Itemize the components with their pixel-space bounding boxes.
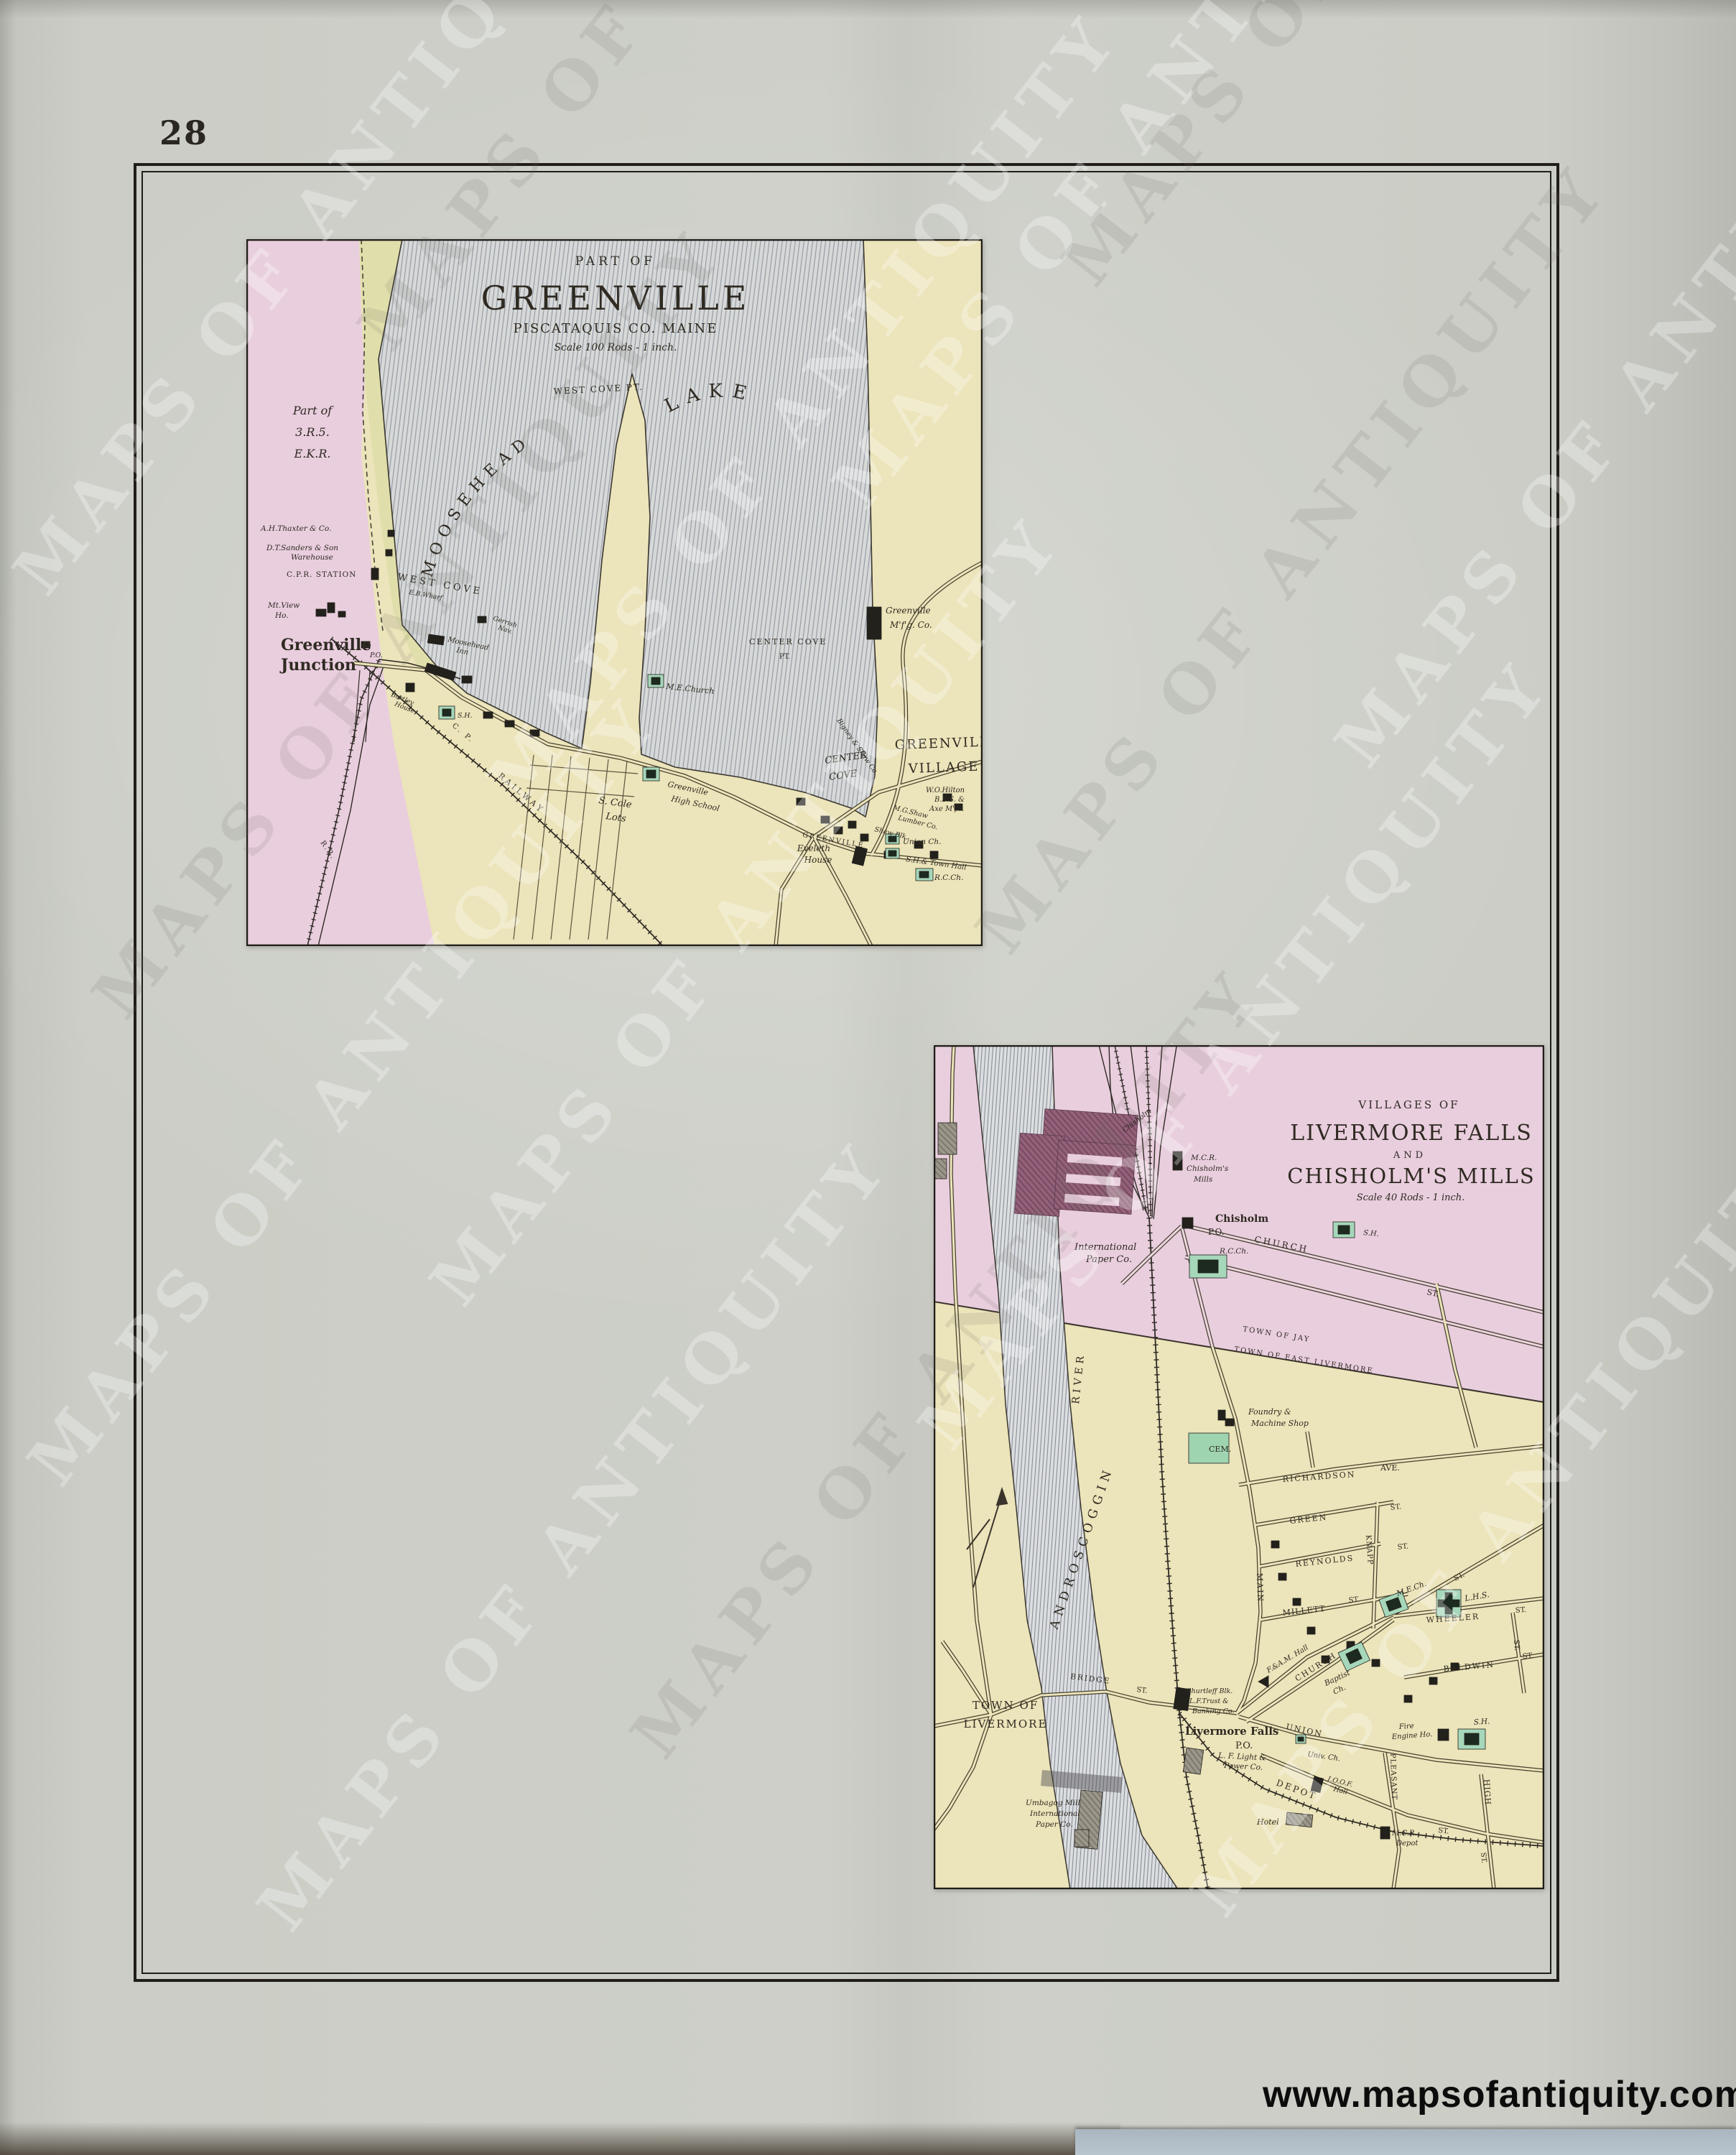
map-label: Warehouse bbox=[291, 553, 333, 562]
page-bottom-shadow bbox=[0, 2122, 1120, 2155]
map-label: ST. bbox=[1348, 1595, 1360, 1605]
map-label: ST. bbox=[1512, 1639, 1521, 1651]
map-label: Banking Co. bbox=[1192, 1707, 1235, 1715]
map-label: PT. bbox=[779, 653, 790, 661]
map-label: ST. bbox=[1479, 1852, 1487, 1863]
map-label: Ho. bbox=[274, 611, 289, 620]
map-label: Umbagog Mill bbox=[1026, 1799, 1080, 1807]
map-label: MAIN bbox=[1255, 1573, 1265, 1603]
map-label: R.C.Ch. bbox=[934, 873, 963, 882]
map-label: ST. bbox=[1515, 1606, 1526, 1615]
map-label: R.C.Ch. bbox=[1219, 1247, 1248, 1256]
photo-top-shadow bbox=[0, 0, 1736, 19]
map-label: ST. bbox=[1136, 1686, 1148, 1695]
map-label: Depot bbox=[1396, 1840, 1419, 1848]
map-label: House bbox=[804, 855, 832, 865]
map-title-and: AND bbox=[1393, 1150, 1426, 1161]
map-title-line1: LIVERMORE FALLS bbox=[1290, 1121, 1533, 1146]
map-label: Shurtleff Blk. bbox=[1187, 1687, 1233, 1695]
map-label: International bbox=[1074, 1242, 1136, 1253]
map-label: Chisholm's bbox=[1187, 1164, 1229, 1173]
map-label: Greenville bbox=[886, 606, 931, 616]
map-label: International bbox=[1029, 1809, 1080, 1818]
map-label: M.C.R. bbox=[1391, 1830, 1417, 1837]
map-label: A.H.Thaxter & Co. bbox=[260, 524, 331, 533]
map-label: Paper Co. bbox=[1085, 1254, 1132, 1265]
map-label: TOWN OF bbox=[973, 1699, 1039, 1712]
map-label: Mills bbox=[1193, 1175, 1213, 1184]
map-label: Part of bbox=[292, 404, 334, 417]
map-label: S.H. bbox=[1363, 1229, 1379, 1238]
map-label: P.O. bbox=[1208, 1227, 1224, 1237]
map-label: E.K.R. bbox=[294, 447, 331, 460]
site-url: www.mapsofantiquity.com bbox=[1263, 2073, 1736, 2116]
map-title-part-of: PART OF bbox=[575, 254, 656, 269]
map-title: GREENVILLE bbox=[481, 279, 751, 318]
map-label: Foundry & bbox=[1248, 1407, 1291, 1417]
map-scale: Scale 100 Rods - 1 inch. bbox=[554, 342, 677, 353]
map-subtitle: PISCATAQUIS CO. MAINE bbox=[514, 321, 718, 336]
map-scale: Scale 40 Rods - 1 inch. bbox=[1357, 1192, 1465, 1203]
map-label: P.O. bbox=[369, 652, 383, 659]
map-label: S.H. bbox=[1473, 1717, 1490, 1727]
map-label: VILLAGE bbox=[907, 759, 979, 777]
map-label: Junction bbox=[279, 656, 356, 675]
map-label: D.T.Sanders & Son bbox=[266, 544, 338, 552]
photographed-atlas-page: 28 bbox=[0, 0, 1736, 2155]
map-title-line2: CHISHOLM'S MILLS bbox=[1287, 1164, 1535, 1188]
map-label: AVE. bbox=[1380, 1463, 1400, 1473]
map-label: LIVERMORE bbox=[964, 1718, 1048, 1730]
map-label: Union Ch. bbox=[903, 838, 942, 846]
map-label: Fire bbox=[1398, 1723, 1414, 1732]
map-label: Mt.View bbox=[267, 601, 300, 610]
map-label: PLEASANT bbox=[1388, 1753, 1398, 1801]
map-label: C.P.R. STATION bbox=[287, 570, 356, 579]
photo-background-corner bbox=[1075, 2129, 1736, 2155]
map-label: M.C.R. bbox=[1190, 1154, 1217, 1162]
map-label: CENTER COVE bbox=[749, 637, 827, 646]
map-label: Chisholm bbox=[1215, 1213, 1268, 1225]
map-label: Machine Shop bbox=[1250, 1419, 1309, 1428]
map-label: HIGH bbox=[1482, 1779, 1493, 1805]
map-label: L.F.Trust & bbox=[1189, 1697, 1229, 1705]
map-label: Hotel bbox=[1256, 1817, 1279, 1827]
map-label: 3.R.5. bbox=[295, 425, 330, 439]
map-label: CEM. bbox=[1209, 1445, 1231, 1454]
map-label: Eveleth bbox=[797, 843, 830, 853]
map-label: Paper Co. bbox=[1035, 1820, 1073, 1829]
livermore-falls-map: VILLAGES OF LIVERMORE FALLS AND CHISHOLM… bbox=[934, 1045, 1544, 1889]
falls-dam bbox=[1041, 1778, 1122, 1785]
map-title-villages-of: VILLAGES OF bbox=[1357, 1098, 1459, 1111]
map-label: ST. bbox=[1522, 1652, 1533, 1661]
page-number: 28 bbox=[159, 113, 208, 152]
map-label: S.H. bbox=[458, 712, 473, 720]
map-label: W.O.Hilton bbox=[926, 787, 965, 794]
map-label: M'f'g. Co. bbox=[889, 620, 932, 630]
map-label: ST. bbox=[1438, 1827, 1449, 1836]
map-label: B.S.S. & bbox=[934, 796, 965, 804]
map-label: P.O. bbox=[1235, 1741, 1253, 1751]
map-label: GREENVILLE bbox=[894, 734, 983, 753]
greenville-map: PART OF GREENVILLE PISCATAQUIS CO. MAINE… bbox=[246, 239, 983, 946]
map-label: ST. bbox=[1390, 1503, 1401, 1512]
map-label: Livermore Falls bbox=[1185, 1725, 1278, 1738]
map-label: ST. bbox=[1397, 1542, 1408, 1552]
map-label: Greenville bbox=[281, 636, 371, 654]
map-label: Axe M'f'r. bbox=[929, 805, 964, 813]
photo-left-shadow bbox=[0, 0, 16, 2155]
greenville-mfg-building bbox=[867, 607, 881, 639]
